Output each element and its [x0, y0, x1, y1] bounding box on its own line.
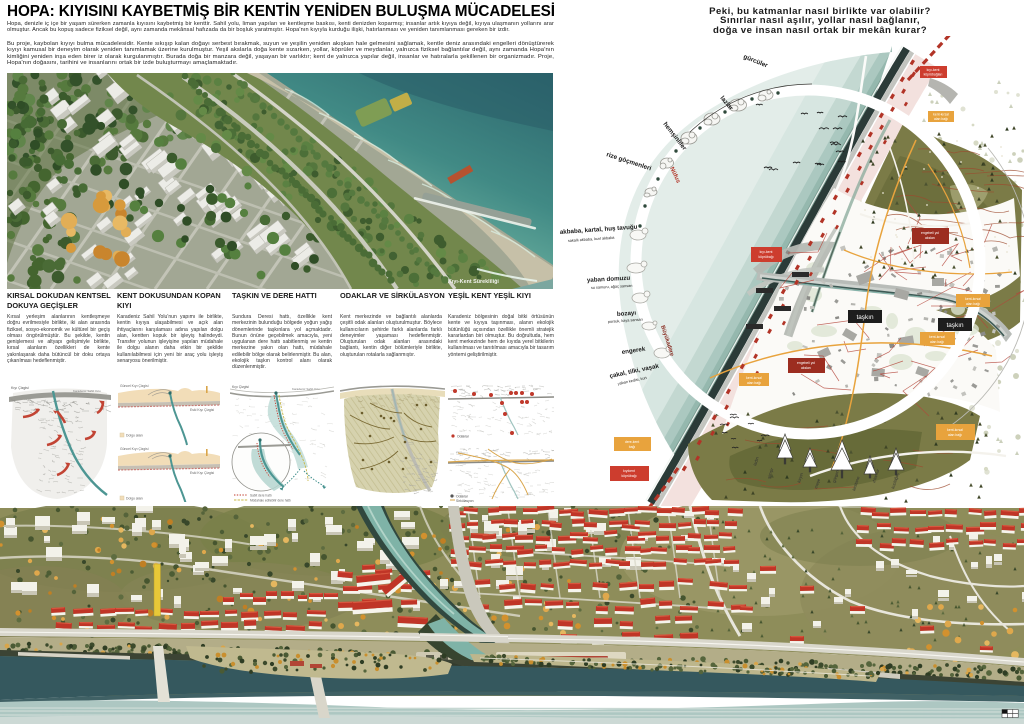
svg-text:Sirkülasyon: Sirkülasyon	[456, 499, 474, 503]
svg-text:aksları: aksları	[925, 236, 935, 240]
svg-text:kent-kırsal: kent-kırsal	[965, 297, 981, 301]
svg-text:kıyıkent: kıyıkent	[623, 469, 635, 473]
svg-text:taşkın: taşkın	[856, 314, 873, 321]
svg-text:Kıyı Çizgisi: Kıyı Çizgisi	[11, 386, 29, 390]
svg-text:alan bağı: alan bağı	[930, 340, 944, 344]
svg-text:Karadeniz Sahil Yolu: Karadeniz Sahil Yolu	[292, 387, 320, 391]
svg-text:Karadeniz Sahil Yolu: Karadeniz Sahil Yolu	[73, 389, 101, 393]
svg-text:Dolgu alanı: Dolgu alanı	[126, 497, 143, 501]
svg-text:Sabit dere hattı: Sabit dere hattı	[250, 494, 272, 498]
svg-text:Müdahale edilebilir dere hattı: Müdahale edilebilir dere hattı	[250, 499, 291, 503]
svg-text:sakallı akbaba, kızıl akbaba: sakallı akbaba, kızıl akbaba	[568, 236, 616, 243]
svg-text:rize göçmenleri: rize göçmenleri	[605, 151, 652, 172]
svg-text:bağı: bağı	[629, 445, 636, 449]
svg-text:kıyı-kent: kıyı-kent	[760, 250, 773, 254]
svg-text:Odaklar: Odaklar	[457, 435, 470, 439]
svg-text:Dolgu alanı: Dolgu alanı	[126, 434, 143, 438]
svg-text:engebeli yol: engebeli yol	[797, 361, 815, 365]
svg-text:Güncel Kıyı Çizgisi: Güncel Kıyı Çizgisi	[120, 384, 149, 388]
svg-text:Odaklar: Odaklar	[456, 495, 469, 499]
svg-text:alan bağı: alan bağı	[948, 433, 962, 437]
svg-text:kent-kırsal: kent-kırsal	[947, 428, 963, 432]
svg-text:kıyı-kent: kıyı-kent	[927, 68, 940, 72]
svg-text:alan bağı: alan bağı	[934, 117, 948, 121]
svg-text:kent-kırsal: kent-kırsal	[929, 335, 945, 339]
svg-text:Güncel Kıyı Çizgisi: Güncel Kıyı Çizgisi	[120, 447, 149, 451]
svg-text:köprübağı: köprübağı	[758, 255, 773, 259]
svg-text:aksları: aksları	[801, 366, 811, 370]
svg-text:Eski Kıyı Çizgisi: Eski Kıyı Çizgisi	[190, 408, 214, 412]
svg-text:bozayı: bozayı	[617, 310, 637, 318]
svg-text:alan bağı: alan bağı	[966, 302, 980, 306]
svg-text:kent-kırsal: kent-kırsal	[933, 113, 949, 117]
svg-text:kent-kırsal: kent-kırsal	[746, 376, 762, 380]
svg-text:Kıyı-Kent Sürekliliği: Kıyı-Kent Sürekliliği	[448, 279, 499, 285]
svg-text:köprübağları: köprübağları	[924, 73, 943, 77]
svg-text:dere-kent: dere-kent	[625, 440, 639, 444]
svg-text:alan bağı: alan bağı	[747, 381, 761, 385]
svg-text:Eski Kıyı Çizgisi: Eski Kıyı Çizgisi	[190, 471, 214, 475]
svg-text:engebeli yol: engebeli yol	[921, 231, 939, 235]
svg-text:gürcüler: gürcüler	[742, 53, 769, 69]
svg-text:Kıyı Çizgisi: Kıyı Çizgisi	[232, 385, 249, 389]
svg-text:taşkın: taşkın	[946, 322, 963, 329]
svg-text:köprübağı: köprübağı	[621, 474, 636, 478]
